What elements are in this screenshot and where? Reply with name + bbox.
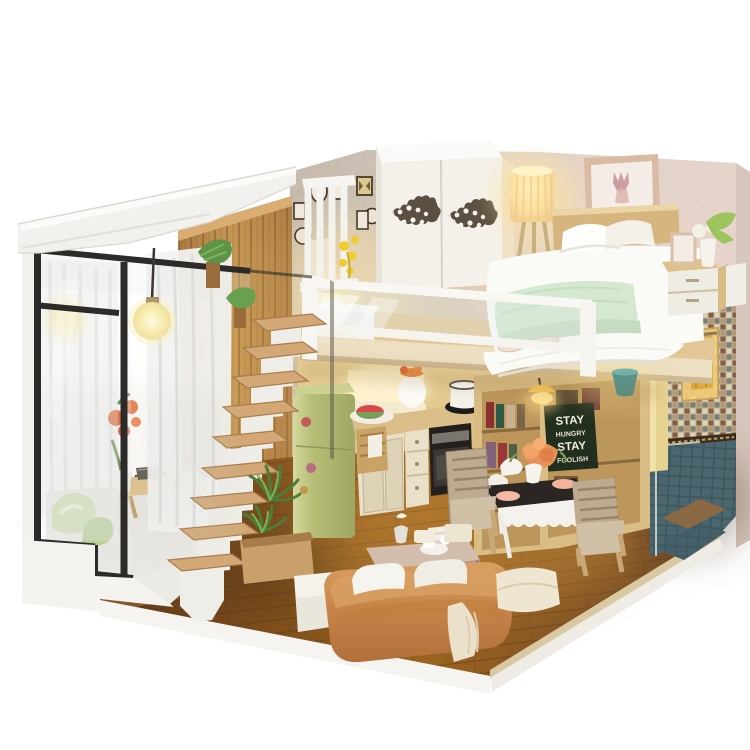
svg-text:STAY: STAY (555, 414, 585, 428)
